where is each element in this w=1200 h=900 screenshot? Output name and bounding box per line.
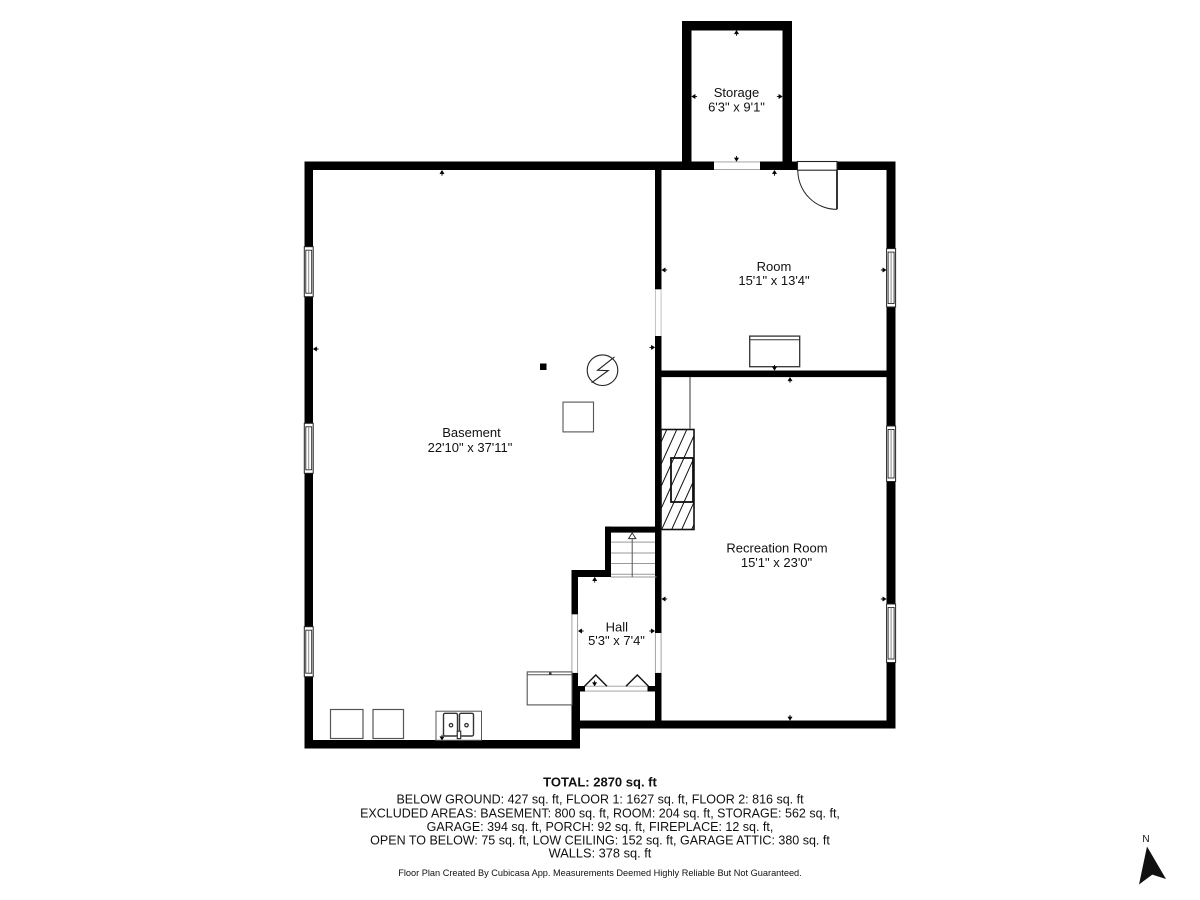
svg-text:Storage: Storage xyxy=(714,85,760,100)
svg-text:22'10" x 37'11": 22'10" x 37'11" xyxy=(428,440,513,455)
svg-text:EXCLUDED AREAS: BASEMENT: 800: EXCLUDED AREAS: BASEMENT: 800 sq. ft, RO… xyxy=(360,806,840,820)
svg-text:15'1" x 13'4": 15'1" x 13'4" xyxy=(738,273,810,288)
svg-text:Floor Plan Created By Cubicasa: Floor Plan Created By Cubicasa App. Meas… xyxy=(398,868,801,878)
svg-text:WALLS: 378 sq. ft: WALLS: 378 sq. ft xyxy=(549,846,652,861)
svg-text:6'3" x 9'1": 6'3" x 9'1" xyxy=(708,100,765,115)
svg-text:Room: Room xyxy=(757,259,792,274)
svg-text:5'3" x 7'4": 5'3" x 7'4" xyxy=(588,633,645,648)
svg-text:BELOW GROUND: 427 sq. ft, FLOO: BELOW GROUND: 427 sq. ft, FLOOR 1: 1627 … xyxy=(396,793,804,807)
svg-text:Recreation Room: Recreation Room xyxy=(726,541,827,556)
svg-text:N: N xyxy=(1142,834,1149,845)
svg-text:15'1" x 23'0": 15'1" x 23'0" xyxy=(741,555,813,570)
svg-text:TOTAL: 2870 sq. ft: TOTAL: 2870 sq. ft xyxy=(543,775,657,790)
svg-text:GARAGE: 394 sq. ft, PORCH: 92: GARAGE: 394 sq. ft, PORCH: 92 sq. ft, FI… xyxy=(427,820,774,834)
svg-text:Basement: Basement xyxy=(442,425,501,440)
